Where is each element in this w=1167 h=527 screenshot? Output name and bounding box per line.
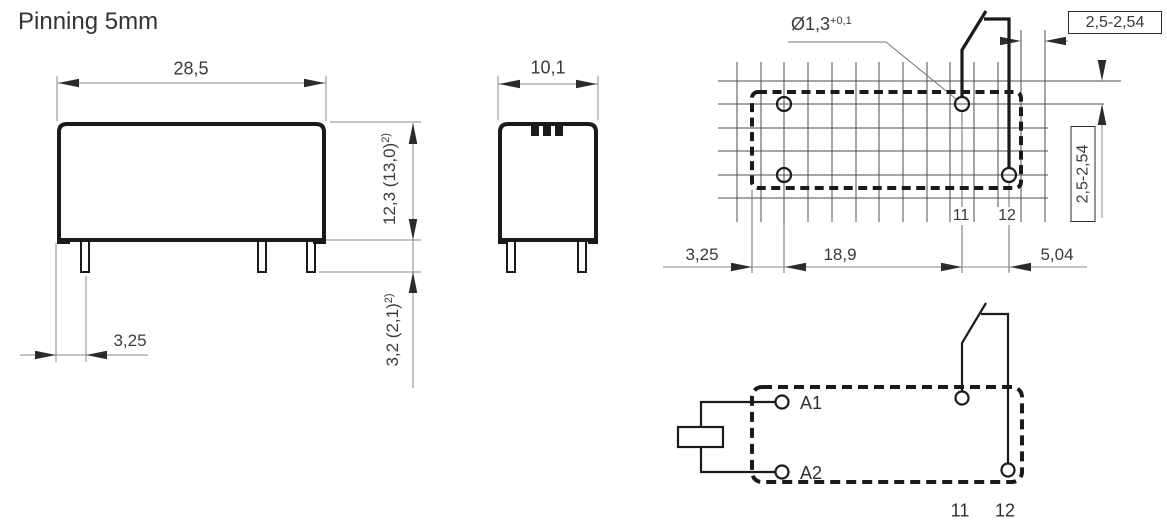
side-view-pins <box>507 240 586 272</box>
side-view-drawing <box>498 76 598 272</box>
schematic-drawing <box>678 303 1022 482</box>
pinning-drawing-page: Pinning 5mm 28,5 12,3 (13,0)2) 3,2 (2,1)… <box>0 0 1167 527</box>
drill-holes <box>777 97 1016 182</box>
dim-front-height: 12,3 (13,0)2) <box>380 133 400 225</box>
coil-symbol <box>678 427 723 447</box>
drilling-plan-drawing <box>663 11 1121 273</box>
dim-front-width: 28,5 <box>173 59 208 80</box>
label-drill-pin12: 12 <box>997 207 1017 225</box>
dim-edge-to-hole: 3,25 <box>685 245 718 265</box>
pitch-box-horizontal: 2,5-2,54 <box>1068 11 1162 34</box>
contact-symbol-top <box>962 11 1009 168</box>
relay-outline-dashed <box>752 92 1021 188</box>
dim-side-width: 10,1 <box>530 58 565 79</box>
hole-diameter-leader <box>788 42 956 99</box>
dim-hole-span: 18,9 <box>823 245 856 265</box>
side-view-body <box>500 124 596 240</box>
front-view-body <box>59 124 324 240</box>
dim-front-pin-offset: 3,25 <box>113 331 146 351</box>
pcb-grid <box>718 30 1121 222</box>
contact-symbol-schematic <box>962 303 1008 463</box>
label-hole-diameter: Ø1,3+0,1 <box>791 14 852 35</box>
dim-pin-spacing: 5,04 <box>1040 245 1073 265</box>
pitch-box-vertical: 2,5-2,54 <box>1071 126 1096 222</box>
side-view-vent-detail <box>531 126 563 136</box>
label-schematic-pin12: 12 <box>995 501 1015 522</box>
front-view-pins <box>81 240 315 272</box>
label-schematic-pin11: 11 <box>951 501 970 522</box>
label-drill-pin11: 11 <box>952 207 971 225</box>
front-view-drawing <box>20 76 421 388</box>
schematic-relay-outline <box>752 387 1022 482</box>
page-title: Pinning 5mm <box>18 8 158 36</box>
dim-front-pin-length: 3,2 (2,1)2) <box>383 293 403 366</box>
label-schematic-a2: A2 <box>800 463 822 484</box>
label-schematic-a1: A1 <box>800 393 822 414</box>
